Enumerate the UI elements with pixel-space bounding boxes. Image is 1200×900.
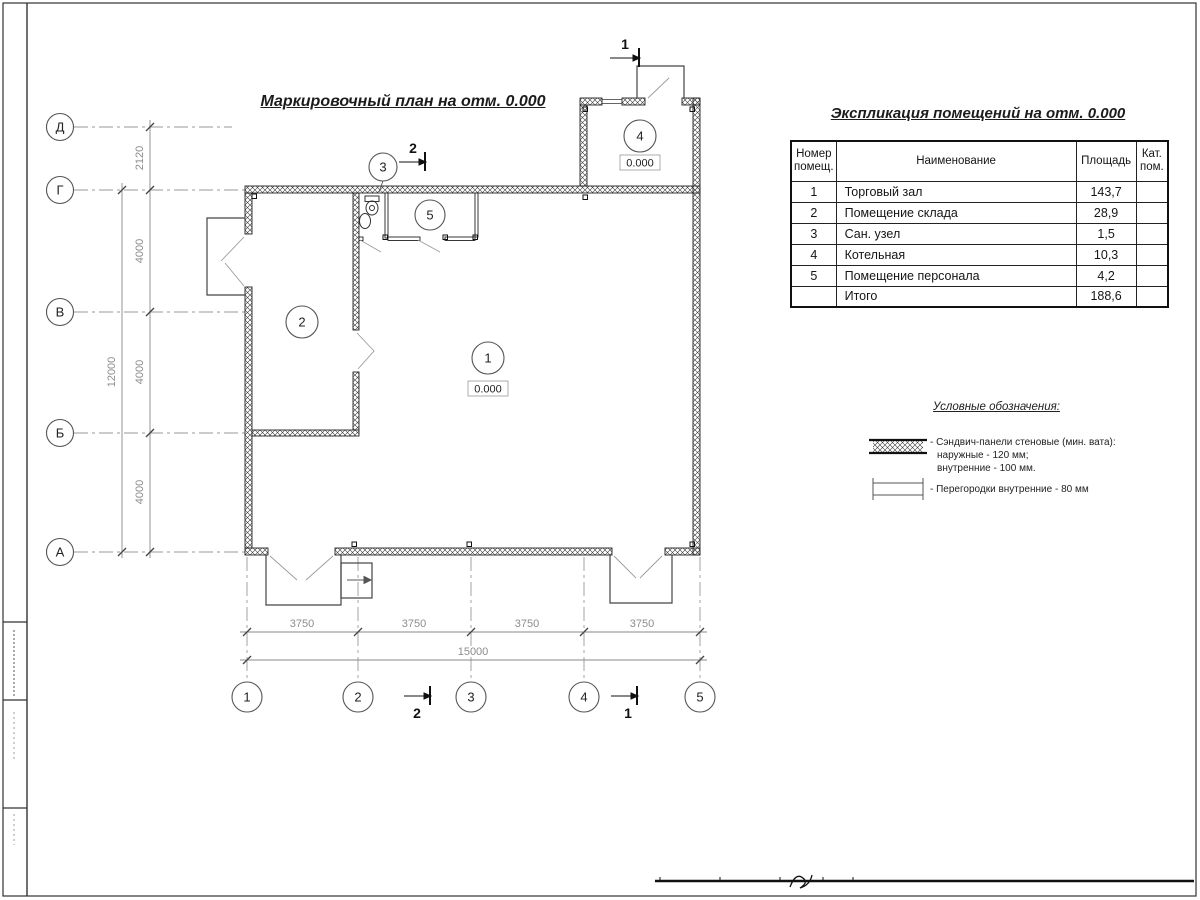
bottom-right-porch bbox=[610, 555, 672, 603]
dim-4000-b: 4000 bbox=[134, 360, 146, 384]
axis-label-3: 3 bbox=[467, 690, 474, 705]
header-area: Площадь bbox=[1076, 141, 1136, 181]
sink-icon bbox=[360, 214, 371, 229]
room-4-level: 0.000 bbox=[626, 158, 654, 170]
explication-title: Экспликация помещений на отм. 0.000 bbox=[828, 105, 1128, 122]
cell-number: 2 bbox=[791, 202, 836, 223]
cell-name: Помещение склада bbox=[836, 202, 1076, 223]
cell-number: 4 bbox=[791, 244, 836, 265]
cell-category bbox=[1136, 202, 1168, 223]
room-1-level: 0.000 bbox=[474, 384, 502, 396]
cell-area: 143,7 bbox=[1076, 181, 1136, 202]
section-1-top-label: 1 bbox=[621, 36, 629, 52]
axis-label-d: Д bbox=[56, 120, 65, 135]
axis-label-5: 5 bbox=[696, 690, 703, 705]
cell-name: Помещение персонала bbox=[836, 265, 1076, 286]
cell-number bbox=[791, 286, 836, 307]
room-3-number: 3 bbox=[379, 160, 386, 175]
dim-3750-b: 3750 bbox=[402, 618, 426, 630]
window bbox=[602, 100, 622, 104]
dim-15000: 15000 bbox=[458, 646, 489, 658]
boiler-porch bbox=[637, 66, 684, 98]
cell-area: 10,3 bbox=[1076, 244, 1136, 265]
drawing-sheet: { "titles": { "plan": "Маркировочный пла… bbox=[0, 0, 1200, 900]
vertical-axis-labels: Д Г В Б А bbox=[56, 120, 65, 560]
header-category: Кат. пом. bbox=[1136, 141, 1168, 181]
cell-area: 1,5 bbox=[1076, 223, 1136, 244]
section-2-bottom-label: 2 bbox=[413, 705, 421, 721]
total-label: Итого bbox=[836, 286, 1076, 307]
dim-3750-a: 3750 bbox=[290, 618, 314, 630]
header-room-number: Номер помещ. bbox=[791, 141, 836, 181]
dim-4000-c: 4000 bbox=[134, 480, 146, 504]
cell-category bbox=[1136, 181, 1168, 202]
left-porch bbox=[207, 218, 245, 295]
table-row: 1 Торговый зал 143,7 bbox=[791, 181, 1168, 202]
axis-label-1: 1 bbox=[243, 690, 250, 705]
title-block-edge bbox=[655, 875, 1194, 888]
entrance-arrow bbox=[347, 577, 371, 584]
legend-title: Условные обозначения: bbox=[933, 401, 1060, 413]
plan-title: Маркировочный план на отм. 0.000 bbox=[258, 93, 548, 111]
legend-swatch-partition bbox=[873, 478, 923, 500]
axis-label-b: Б bbox=[56, 426, 65, 441]
table-total-row: Итого 188,6 bbox=[791, 286, 1168, 307]
cell-category bbox=[1136, 223, 1168, 244]
cell-area: 4,2 bbox=[1076, 265, 1136, 286]
cell-number: 3 bbox=[791, 223, 836, 244]
axis-label-2: 2 bbox=[354, 690, 361, 705]
table-row: 4 Котельная 10,3 bbox=[791, 244, 1168, 265]
porches bbox=[207, 66, 684, 605]
cell-category bbox=[1136, 244, 1168, 265]
room-5-number: 5 bbox=[426, 208, 433, 223]
axis-label-a: А bbox=[56, 545, 65, 560]
legend-item-sandwich-panels: - Сэндвич-панели стеновые (мин. вата): н… bbox=[930, 436, 1116, 475]
section-1-bottom-label: 1 bbox=[624, 705, 632, 721]
table-row: 3 Сан. узел 1,5 bbox=[791, 223, 1168, 244]
cell-name: Сан. узел bbox=[836, 223, 1076, 244]
cell-category bbox=[1136, 286, 1168, 307]
axis-label-g: Г bbox=[56, 183, 63, 198]
table-header-row: Номер помещ. Наименование Площадь Кат. п… bbox=[791, 141, 1168, 181]
dim-12000: 12000 bbox=[106, 357, 118, 388]
cell-number: 5 bbox=[791, 265, 836, 286]
vertical-axis-bubbles bbox=[47, 114, 74, 566]
bottom-dimension-text: 3750 3750 3750 3750 15000 bbox=[290, 618, 654, 658]
legend-line: наружные - 120 мм; bbox=[930, 449, 1116, 462]
legend-item-partitions: - Перегородки внутренние - 80 мм bbox=[930, 483, 1089, 496]
legend-line: - Сэндвич-панели стеновые (мин. вата): bbox=[930, 436, 1116, 449]
section-marks bbox=[399, 48, 640, 705]
table-row: 2 Помещение склада 28,9 bbox=[791, 202, 1168, 223]
room-bubbles bbox=[286, 120, 660, 396]
section-2-top-label: 2 bbox=[409, 140, 417, 156]
cell-name: Котельная bbox=[836, 244, 1076, 265]
toilet-icon bbox=[365, 196, 379, 215]
left-dimension-text: 2120 4000 4000 4000 12000 bbox=[106, 146, 146, 504]
axis-label-4: 4 bbox=[580, 690, 587, 705]
legend-swatch-sandwich bbox=[869, 440, 927, 453]
cell-category bbox=[1136, 265, 1168, 286]
partition-walls bbox=[359, 193, 478, 241]
explication-table: Номер помещ. Наименование Площадь Кат. п… bbox=[790, 140, 1169, 308]
room-labels: 1 2 3 4 5 0.000 0.000 bbox=[298, 129, 653, 396]
legend-line: - Перегородки внутренние - 80 мм bbox=[930, 483, 1089, 496]
axis-label-v: В bbox=[56, 305, 65, 320]
total-area: 188,6 bbox=[1076, 286, 1136, 307]
room-1-number: 1 bbox=[484, 351, 491, 366]
room-2-number: 2 bbox=[298, 315, 305, 330]
table-row: 5 Помещение персонала 4,2 bbox=[791, 265, 1168, 286]
cell-area: 28,9 bbox=[1076, 202, 1136, 223]
dim-4000-a: 4000 bbox=[134, 239, 146, 263]
wall-end-markers bbox=[252, 107, 695, 547]
cell-number: 1 bbox=[791, 181, 836, 202]
legend-line: внутренние - 100 мм. bbox=[930, 462, 1116, 475]
dim-2120: 2120 bbox=[134, 146, 146, 170]
room-4-number: 4 bbox=[636, 129, 643, 144]
dim-3750-d: 3750 bbox=[630, 618, 654, 630]
cell-name: Торговый зал bbox=[836, 181, 1076, 202]
header-name: Наименование bbox=[836, 141, 1076, 181]
dim-3750-c: 3750 bbox=[515, 618, 539, 630]
